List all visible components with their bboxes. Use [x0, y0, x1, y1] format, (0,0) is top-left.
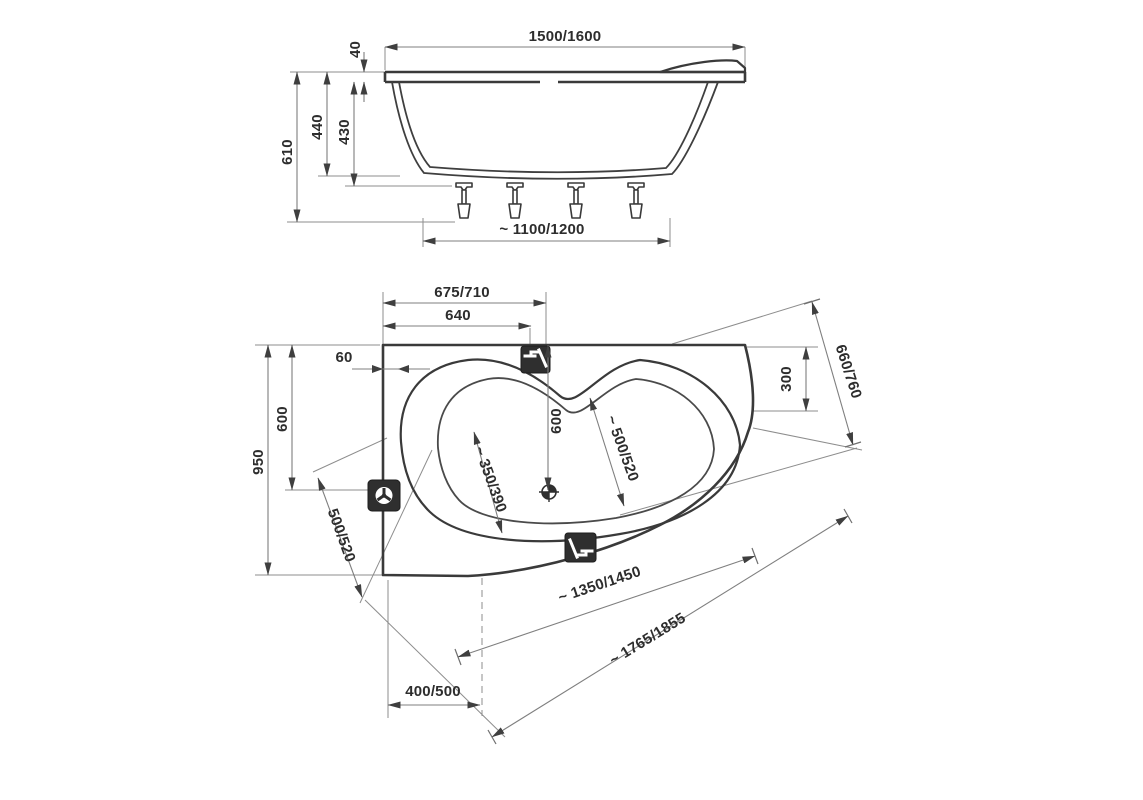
- dim-label-corner-offset: 400/500: [405, 683, 461, 700]
- dim-label-rim: 40: [347, 41, 364, 58]
- faucet-icon: [565, 533, 596, 562]
- foot: [456, 183, 472, 218]
- dim-label-faucet-edge: 675/710: [434, 284, 490, 301]
- dim-label-wall-gap: 60: [335, 349, 352, 366]
- overflow-drain-icon: [368, 480, 400, 511]
- technical-drawing-page: 1500/1600 40 610 440 430 ~ 1100/1200: [0, 0, 1143, 800]
- construction-line-topright: [672, 301, 812, 344]
- ext-end-width-b: [360, 450, 432, 603]
- tick: [488, 730, 496, 744]
- dim-label-length: 1500/1600: [529, 28, 602, 45]
- dim-label-depth-outer: 440: [309, 114, 326, 140]
- adjustable-feet: [456, 183, 644, 218]
- side-view: 1500/1600 40 610 440 430 ~ 1100/1200: [279, 28, 745, 247]
- foot: [568, 183, 584, 218]
- dim-label-faucet-center: 640: [445, 307, 471, 324]
- dim-label-base: ~ 1100/1200: [499, 221, 584, 238]
- arrow: [372, 365, 383, 373]
- shell-inner: [399, 82, 708, 172]
- arrow: [398, 365, 409, 373]
- dim-label-width: 950: [250, 449, 267, 475]
- dim-label-drain-axis: 600: [274, 406, 291, 432]
- headrest-ledge: [660, 60, 745, 72]
- tick: [752, 548, 758, 564]
- tick: [455, 649, 461, 665]
- construction-line-left: [365, 600, 505, 737]
- foot: [628, 183, 644, 218]
- ext-end-width-a: [313, 438, 387, 472]
- dim-label-end-width-left: 500/520: [324, 506, 359, 564]
- faucet-icon: [521, 346, 550, 373]
- drain-cross-icon: [539, 482, 559, 502]
- dim-label-basin-right: ~ 500/520: [602, 413, 642, 484]
- plan-view: 675/710 640 60 600 950 500/520 ~ 350/390…: [250, 284, 865, 744]
- dim-label-angled-edge: 660/760: [832, 343, 865, 401]
- basin-rim: [401, 359, 740, 541]
- dim-label-diagonal: ~ 1765/1855: [607, 609, 689, 668]
- dim-label-depth-inner: 430: [336, 119, 353, 145]
- tick: [844, 509, 852, 523]
- dim-label-front-chord: ~ 1350/1450: [556, 563, 643, 606]
- dim-label-basin-left: ~ 350/390: [470, 444, 510, 515]
- tick: [845, 442, 861, 447]
- dim-label-drain-depth: 600: [548, 408, 565, 434]
- foot: [507, 183, 523, 218]
- bathtub-diagram: 1500/1600 40 610 440 430 ~ 1100/1200: [0, 0, 1143, 800]
- dim-line-front-chord: [458, 556, 755, 657]
- dim-label-height: 610: [279, 139, 296, 165]
- dim-label-corner-depth: 300: [778, 366, 795, 392]
